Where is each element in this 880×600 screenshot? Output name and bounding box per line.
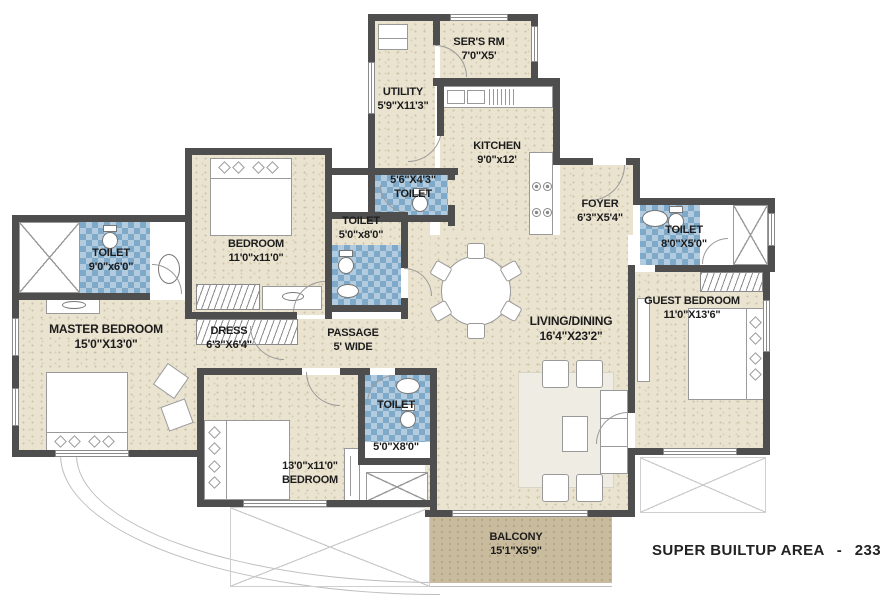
room-label-foyer: FOYER 6'3"X5'4" — [577, 198, 623, 226]
armchair-icon — [576, 360, 603, 388]
shower-icon — [19, 222, 80, 293]
burner-icon — [532, 208, 541, 217]
room-dims: 5'9"X11'3" — [378, 100, 429, 114]
room-dims: 5'0"x8'0" — [339, 229, 383, 243]
washer-line — [379, 38, 407, 39]
room-dims: 5'0"X8'0" — [373, 441, 419, 455]
room-label-guest-bedroom: GUEST BEDROOM 11'0"X13'6" — [644, 295, 740, 323]
wall-segment — [197, 368, 204, 507]
room-label-toilet-kitchen: 5'6"X4'3" TOILET — [390, 174, 436, 202]
room-dims: 9'0"x12' — [473, 154, 521, 168]
dresser-dish-icon — [62, 301, 86, 309]
wall-segment — [401, 212, 408, 268]
washbasin-icon — [337, 284, 359, 298]
wall-segment — [628, 265, 635, 413]
ledge-right-icon — [640, 457, 766, 513]
wardrobe-icon — [700, 272, 763, 292]
coffee-table-icon — [562, 416, 588, 452]
room-name: TOILET — [373, 399, 419, 413]
room-label-bedroom2: BEDROOM 11'0"x11'0" — [228, 238, 284, 266]
wall-segment — [430, 368, 437, 517]
room-label-toilet-master: TOILET 9'0"x6'0" — [89, 247, 133, 275]
room-label-toilet-common: TOILET 5'0"X8'0" — [373, 399, 419, 455]
wall-segment — [553, 158, 593, 165]
wall-segment — [185, 148, 332, 155]
room-dims: 13'0"x11'0" — [282, 460, 338, 474]
room-name: BEDROOM — [282, 474, 338, 488]
room-dims: 11'0"x11'0" — [228, 252, 284, 266]
room-label-master-bedroom: MASTER BEDROOM 15'0"X13'0" — [49, 322, 163, 352]
window — [12, 318, 19, 356]
room-dims: 5'6"X4'3" — [390, 174, 436, 188]
room-dims: 16'4"X23'2" — [530, 329, 613, 344]
dining-chair-icon — [467, 323, 485, 339]
floor-plan: SER'S RM 7'0"X5' UTILITY 5'9"X11'3" KITC… — [0, 0, 880, 600]
window — [531, 26, 538, 62]
bed-line — [226, 420, 227, 500]
washbasin-icon — [396, 378, 420, 394]
armchair-icon — [576, 474, 603, 502]
room-name: MASTER BEDROOM — [49, 322, 163, 337]
armchair-icon — [542, 360, 569, 388]
bed-line — [746, 308, 747, 400]
burner-icon — [543, 182, 552, 191]
duct-icon — [366, 472, 428, 502]
balcony-sliding-door — [452, 510, 588, 517]
room-name: KITCHEN — [473, 140, 521, 154]
room-name: TOILET — [661, 224, 707, 238]
window — [243, 500, 327, 507]
balcony-edge-line — [430, 586, 612, 587]
room-dims: 9'0"x6'0" — [89, 261, 133, 275]
drainboard-icon — [489, 89, 515, 105]
room-label-balcony: BALCONY 15'1"X5'9" — [490, 531, 543, 559]
room-dims: 5' WIDE — [327, 341, 379, 355]
room-label-toilet-passage: TOILET 5'0"x8'0" — [339, 215, 383, 243]
wall-segment — [433, 78, 560, 86]
room-label-passage: PASSAGE 5' WIDE — [327, 327, 379, 355]
room-dims: 11'0"X13'6" — [644, 309, 740, 323]
sofa-line — [600, 446, 628, 447]
wall-segment — [197, 368, 302, 375]
room-name: TOILET — [89, 247, 133, 261]
room-name: TOILET — [339, 215, 383, 229]
super-builtup-area-note: SUPER BUILTUP AREA - 2330 sft. — [652, 542, 880, 559]
room-name: DRESS — [206, 325, 252, 339]
window — [55, 450, 129, 457]
wall-segment — [628, 448, 635, 517]
stove-counter — [529, 152, 553, 235]
area-value: 2330 sft. — [855, 542, 880, 559]
washer-icon — [378, 24, 408, 50]
wall-segment — [655, 265, 775, 272]
kitchen-sink-icon — [467, 90, 485, 104]
wall-segment — [12, 215, 192, 222]
room-dims: 7'0"X5' — [453, 50, 504, 64]
wall-segment — [358, 458, 437, 465]
bed-line — [210, 178, 292, 179]
room-name: BALCONY — [490, 531, 543, 545]
room-dims: 15'0"X13'0" — [49, 337, 163, 352]
room-name: GUEST BEDROOM — [644, 295, 740, 309]
room-dims: 6'3"X5'4" — [577, 212, 623, 226]
room-label-bedroom3: 13'0"x11'0" BEDROOM — [282, 460, 338, 488]
window — [368, 62, 375, 114]
burner-icon — [532, 182, 541, 191]
window — [663, 448, 737, 455]
wall-segment — [448, 168, 455, 180]
toilet-wc-icon — [336, 250, 356, 276]
room-dims: 15'1"X5'9" — [490, 545, 543, 559]
window — [12, 388, 19, 426]
burner-icon — [543, 208, 552, 217]
wall-segment — [185, 312, 297, 319]
dining-chair-icon — [467, 243, 485, 259]
room-label-dress: DRESS 6'3"X6'4" — [206, 325, 252, 353]
wardrobe-icon — [196, 284, 260, 310]
room-label-toilet-right: TOILET 8'0"X5'0" — [661, 224, 707, 252]
side-table-line — [350, 456, 351, 496]
wall-segment — [185, 148, 192, 319]
room-name: UTILITY — [378, 86, 429, 100]
terrace-truss-icon — [230, 507, 430, 587]
bed-line — [46, 432, 128, 433]
wall-segment — [19, 293, 150, 300]
room-name: BEDROOM — [228, 238, 284, 252]
room-label-kitchen: KITCHEN 9'0"x12' — [473, 140, 521, 168]
wall-segment — [433, 21, 440, 45]
window — [763, 300, 770, 352]
room-label-sers-rm: SER'S RM 7'0"X5' — [453, 36, 504, 64]
room-dims: 8'0"X5'0" — [661, 238, 707, 252]
room-name: FOYER — [577, 198, 623, 212]
wall-segment — [325, 148, 332, 319]
room-name: SER'S RM — [453, 36, 504, 50]
room-dims: 6'3"X6'4" — [206, 339, 252, 353]
room-label-utility: UTILITY 5'9"X11'3" — [378, 86, 429, 114]
wall-segment — [633, 198, 775, 205]
wall-segment — [553, 86, 560, 165]
armchair-icon — [542, 474, 569, 502]
room-label-living-dining: LIVING/DINING 16'4"X23'2" — [530, 314, 613, 344]
shower-icon — [733, 205, 768, 265]
window — [450, 14, 508, 21]
wall-segment — [437, 86, 444, 136]
area-separator: - — [837, 542, 842, 559]
wall-segment — [358, 368, 365, 465]
room-name: TOILET — [390, 188, 436, 202]
window — [768, 213, 775, 246]
room-name: PASSAGE — [327, 327, 379, 341]
area-label: SUPER BUILTUP AREA — [652, 542, 824, 559]
room-name: LIVING/DINING — [530, 314, 613, 329]
kitchen-sink-icon — [447, 90, 465, 104]
wall-segment — [325, 305, 408, 312]
